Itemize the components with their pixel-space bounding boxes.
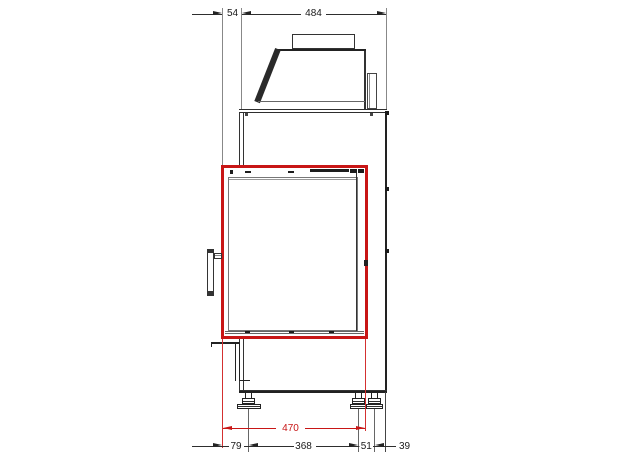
dim-arrow-icon [375, 443, 384, 447]
leveling-foot-nut-line [369, 401, 380, 402]
dim-arrow-icon [377, 11, 386, 15]
door-handle-cap-top [208, 250, 213, 253]
top-plate-stud [370, 113, 373, 116]
ash-bracket-inner [239, 344, 240, 381]
door-latch-right [364, 260, 368, 266]
technical-drawing-canvas: 54 484 [0, 0, 624, 460]
top-plate-stud [245, 113, 248, 116]
door-handle-bar [207, 249, 214, 296]
door-hinge-block [350, 169, 357, 174]
dim-arrow-icon [223, 426, 232, 430]
dim-arrow-icon [242, 11, 251, 15]
ash-bracket-outer [235, 344, 236, 381]
door-top-hardware [288, 171, 294, 173]
dim-line-bottom [192, 446, 229, 447]
door-top-rail [310, 169, 349, 172]
hood-bottom-edge [258, 101, 365, 102]
dim-label-51: 51 [360, 442, 373, 452]
dim-label-39: 39 [398, 442, 411, 452]
extension-line-body-front [241, 8, 242, 109]
front-wall-lower-inner [243, 339, 244, 391]
front-wall-upper-outer [239, 113, 240, 165]
extension-line-rear [385, 392, 386, 452]
hood-right-edge [364, 51, 366, 109]
rear-spacer-box [367, 73, 377, 109]
door-top-hardware [245, 171, 251, 173]
red-extension-line-left [222, 339, 223, 448]
hood-top-edge [275, 49, 366, 51]
top-plate [239, 109, 387, 113]
leveling-foot-nut-line [243, 401, 254, 402]
ash-bracket-foot [239, 380, 250, 382]
dim-label-368: 368 [294, 442, 313, 452]
door-hinge-block [358, 169, 364, 173]
leveling-foot-plate-line [238, 406, 260, 407]
dim-label-54: 54 [226, 9, 239, 19]
door-bottom-pin [289, 331, 294, 333]
door-edge-right [356, 170, 358, 332]
rear-wall-stud [385, 249, 388, 253]
door-glass-frame [228, 177, 358, 332]
leveling-foot-nut-line [353, 401, 364, 402]
door-bottom-pin [329, 331, 334, 333]
door-top-hardware [230, 170, 234, 174]
door-handle-cap-bottom [208, 291, 213, 294]
front-lip-end [211, 342, 212, 347]
dim-arrow-icon [356, 426, 365, 430]
leveling-foot-plate-line [351, 406, 366, 407]
rear-spacer-inner-line [369, 74, 370, 109]
dim-label-470: 470 [281, 424, 300, 434]
red-extension-line-right [365, 339, 366, 431]
dim-arrow-icon [349, 443, 358, 447]
door-glass-top-line [229, 179, 357, 180]
dim-label-79: 79 [229, 442, 242, 452]
flue-collar [292, 34, 356, 49]
dim-arrow-icon [213, 11, 222, 15]
hood-sloped-front [254, 48, 280, 103]
dim-arrow-icon [213, 443, 222, 447]
leveling-foot-plate-line [367, 406, 382, 407]
rear-wall-stud [385, 187, 388, 191]
door-bottom-pin [245, 331, 250, 333]
dim-label-484: 484 [304, 9, 323, 19]
extension-line-body-back [386, 8, 387, 109]
door-handle-arm-line [215, 255, 221, 256]
extension-line-front-glass [222, 8, 223, 165]
front-wall-upper-inner [243, 113, 244, 165]
dim-arrow-icon [249, 443, 258, 447]
rear-wall-stud [385, 111, 388, 115]
